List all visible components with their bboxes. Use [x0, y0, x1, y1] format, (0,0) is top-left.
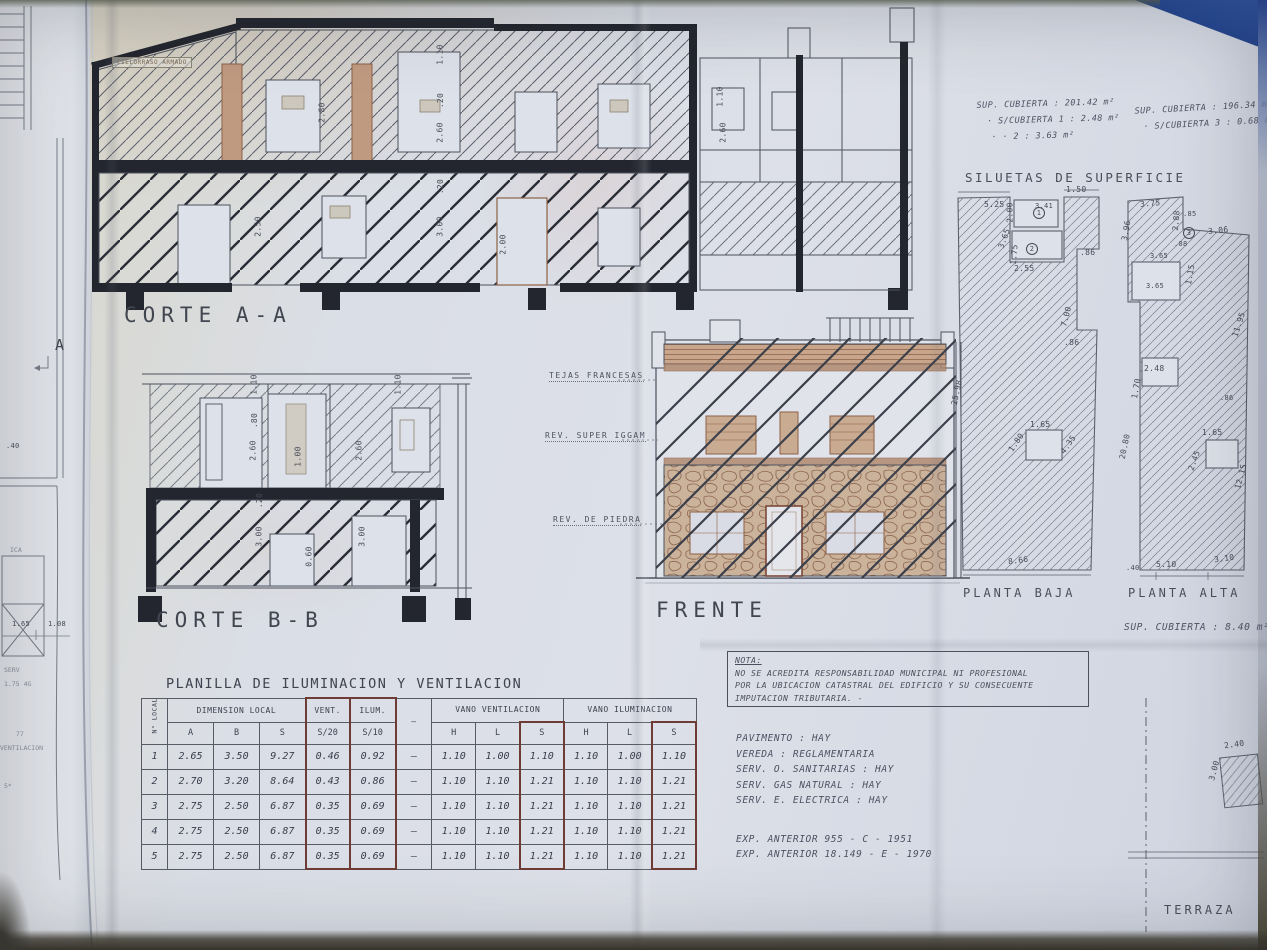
siluetas-title: SILUETAS DE SUPERFICIE	[965, 170, 1186, 185]
nota-box: NOTA: NO SE ACREDITA RESPONSABILIDAD MUN…	[727, 651, 1089, 707]
table-cell: 3	[142, 794, 168, 819]
table-cell: 1.10	[652, 744, 696, 769]
table-cell: 1.10	[564, 819, 608, 844]
table-cell: 1.21	[520, 794, 564, 819]
col-header: H	[564, 722, 608, 744]
col-header: A	[168, 722, 214, 744]
table-cell: 1.10	[608, 769, 652, 794]
callout-rev-piedra: REV. DE PIEDRA	[553, 515, 641, 526]
servicio-item: SERV. GAS NATURAL : HAY	[736, 778, 894, 794]
table-cell: 2.75	[168, 844, 214, 869]
col-header-local: N° LOCAL	[142, 698, 168, 744]
sup-cubierta-right: SUP. CUBIERTA : 196.34 m² · S/CUBIERTA 3…	[1134, 96, 1267, 135]
nota-line: IMPUTACION TRIBUTARIA. -	[735, 692, 1081, 705]
col-group-dimension: DIMENSION LOCAL	[168, 698, 306, 722]
callout-tejas-francesas: TEJAS FRANCESAS	[549, 371, 644, 382]
table-cell: 1.21	[520, 844, 564, 869]
table-cell: 2.75	[168, 794, 214, 819]
table-cell: 1.10	[432, 744, 476, 769]
sup-cubierta-planta-alta: SUP. CUBIERTA : 8.40 m²	[1124, 622, 1267, 633]
table-cell: 9.27	[260, 744, 306, 769]
table-cell: 1.10	[476, 844, 520, 869]
col-header: S/20	[306, 722, 350, 744]
table-cell: 1.10	[476, 819, 520, 844]
table-cell: 2	[142, 769, 168, 794]
planilla-table: N° LOCAL DIMENSION LOCAL VENT. ILUM. — V…	[141, 697, 697, 870]
table-row: 12.653.509.270.460.92—1.101.001.101.101.…	[142, 744, 697, 769]
table-cell: 1.21	[652, 769, 696, 794]
table-cell: 1.10	[432, 844, 476, 869]
corte-aa-label: CORTE A-A	[124, 303, 292, 327]
table-cell: —	[396, 744, 432, 769]
planilla-title: PLANILLA DE ILUMINACION Y VENTILACION	[166, 676, 522, 692]
expediente-item: EXP. ANTERIOR 955 - C - 1951	[736, 832, 932, 847]
table-cell: 2.50	[214, 844, 260, 869]
table-cell: 1.10	[476, 769, 520, 794]
table-cell: 1.21	[520, 819, 564, 844]
table-cell: 0.86	[350, 769, 396, 794]
blueprint-photo: CORTE A-A CORTE B-B FRENTE SILUETAS DE S…	[0, 0, 1267, 950]
table-cell: 1.00	[476, 744, 520, 769]
servicio-item: PAVIMENTO : HAY	[736, 731, 894, 747]
table-cell: 3.20	[214, 769, 260, 794]
table-cell: 1.10	[476, 794, 520, 819]
table-cell: —	[396, 794, 432, 819]
col-group-ilum: ILUM.	[350, 698, 396, 722]
table-cell: 0.92	[350, 744, 396, 769]
table-cell: 1.21	[652, 819, 696, 844]
table-cell: 1.10	[432, 794, 476, 819]
terraza-label: TERRAZA	[1164, 903, 1236, 917]
table-cell: 0.69	[350, 819, 396, 844]
table-cell: 6.87	[260, 794, 306, 819]
table-cell: 1.10	[564, 794, 608, 819]
nota-line: POR LA UBICACION CATASTRAL DEL EDIFICIO …	[735, 679, 1081, 692]
table-cell: 2.50	[214, 794, 260, 819]
table-cell: 5	[142, 844, 168, 869]
col-header: S/10	[350, 722, 396, 744]
servicios-list: PAVIMENTO : HAY VEREDA : REGLAMENTARIA S…	[736, 731, 894, 809]
table-cell: 1.21	[652, 844, 696, 869]
col-group-vano-ilum: VANO ILUMINACION	[564, 698, 696, 722]
cielorraso-note: CIELORRASO ARMADO	[112, 57, 192, 68]
nota-title: NOTA:	[735, 655, 762, 665]
table-cell: 6.87	[260, 819, 306, 844]
table-row: 22.703.208.640.430.86—1.101.101.211.101.…	[142, 769, 697, 794]
planta-alta-label: PLANTA ALTA	[1128, 586, 1240, 600]
col-header: H	[432, 722, 476, 744]
table-cell: 2.65	[168, 744, 214, 769]
table-cell: 1.10	[608, 794, 652, 819]
table-row: 52.752.506.870.350.69—1.101.101.211.101.…	[142, 844, 697, 869]
col-header-dash: —	[396, 698, 432, 744]
table-cell: 1.10	[432, 819, 476, 844]
col-group-vent: VENT.	[306, 698, 350, 722]
table-cell: 1.21	[520, 769, 564, 794]
table-cell: 2.70	[168, 769, 214, 794]
table-row: 32.752.506.870.350.69—1.101.101.211.101.…	[142, 794, 697, 819]
table-cell: 1.10	[564, 769, 608, 794]
table-cell: 0.35	[306, 844, 350, 869]
sup-cubierta-left: SUP. CUBIERTA : 201.42 m² · S/CUBIERTA 1…	[976, 94, 1120, 146]
table-cell: 8.64	[260, 769, 306, 794]
col-header: S	[652, 722, 696, 744]
section-marker-a: A	[55, 336, 64, 354]
table-cell: 0.69	[350, 794, 396, 819]
col-header: L	[476, 722, 520, 744]
servicio-item: SERV. E. ELECTRICA : HAY	[736, 793, 894, 809]
table-cell: 1	[142, 744, 168, 769]
table-cell: —	[396, 769, 432, 794]
table-cell: 3.50	[214, 744, 260, 769]
col-group-vano-vent: VANO VENTILACION	[432, 698, 564, 722]
table-cell: 0.35	[306, 819, 350, 844]
table-row: 42.752.506.870.350.69—1.101.101.211.101.…	[142, 819, 697, 844]
planta-baja-label: PLANTA BAJA	[963, 586, 1075, 600]
table-cell: 2.75	[168, 819, 214, 844]
nota-line: NO SE ACREDITA RESPONSABILIDAD MUNICIPAL…	[735, 667, 1081, 680]
col-header: L	[608, 722, 652, 744]
frente-label: FRENTE	[656, 598, 768, 622]
table-cell: 1.10	[608, 844, 652, 869]
table-cell: 1.10	[608, 819, 652, 844]
col-header: B	[214, 722, 260, 744]
table-cell: 1.00	[608, 744, 652, 769]
table-cell: —	[396, 844, 432, 869]
expediente-item: EXP. ANTERIOR 18.149 - E - 1970	[736, 847, 932, 862]
table-cell: 1.10	[520, 744, 564, 769]
servicio-item: SERV. O. SANITARIAS : HAY	[736, 762, 894, 778]
table-cell: 0.43	[306, 769, 350, 794]
table-cell: 0.69	[350, 844, 396, 869]
table-cell: 1.10	[432, 769, 476, 794]
servicio-item: VEREDA : REGLAMENTARIA	[736, 747, 894, 763]
table-cell: 1.10	[564, 844, 608, 869]
table-cell: 0.35	[306, 794, 350, 819]
table-cell: 6.87	[260, 844, 306, 869]
col-header: S	[260, 722, 306, 744]
table-cell: —	[396, 819, 432, 844]
table-cell: 0.46	[306, 744, 350, 769]
col-header: S	[520, 722, 564, 744]
table-cell: 2.50	[214, 819, 260, 844]
table-cell: 4	[142, 819, 168, 844]
table-cell: 1.10	[564, 744, 608, 769]
expedientes-list: EXP. ANTERIOR 955 - C - 1951 EXP. ANTERI…	[736, 832, 932, 862]
corte-bb-label: CORTE B-B	[156, 608, 324, 632]
table-cell: 1.21	[652, 794, 696, 819]
callout-rev-super: REV. SUPER IGGAM	[545, 431, 646, 442]
